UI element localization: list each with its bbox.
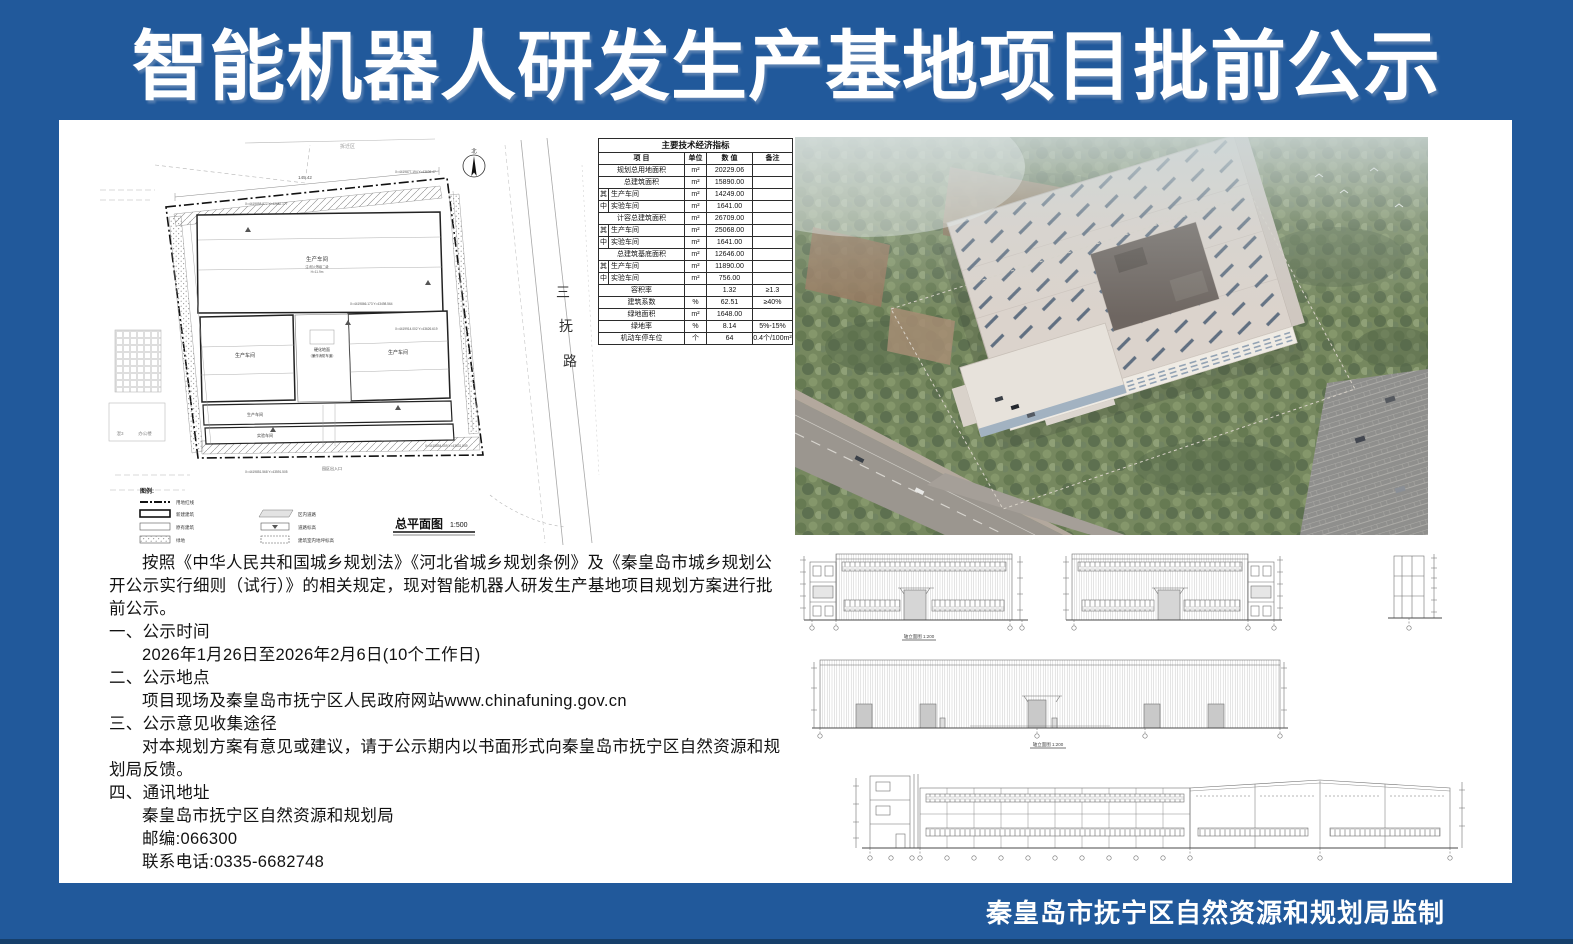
svg-text:道路标高: 道路标高 (298, 524, 316, 531)
notice-line: 秦皇岛市抚宁区自然资源和规划局 (109, 805, 799, 828)
plan-legend: 图例: 用地红线 新建建筑 原有建筑 绿地 区内道路 道路标高 建筑室内地坪标高 (140, 487, 334, 544)
indicator-note (753, 273, 793, 285)
bottom-edge (0, 939, 1573, 944)
svg-text:X=4419877.194 Y=43636.47: X=4419877.194 Y=43636.47 (395, 170, 436, 174)
indicator-unit: m² (685, 201, 707, 213)
road-name-char-3: 路 (563, 353, 577, 369)
indicator-row: 其生产车间m²14249.00 (599, 189, 793, 201)
indicator-label: 建筑系数 (599, 297, 684, 308)
indicator-row: 中实验车间m²1641.00 (599, 201, 793, 213)
indicator-unit: m² (685, 189, 707, 201)
indicator-note: ≥1.3 (753, 285, 793, 297)
notice-line: 三、公示意见收集途径 (109, 713, 799, 736)
indicator-note: 5%-15% (753, 321, 793, 333)
indicator-row: 计容总建筑面积m²26709.00 (599, 213, 793, 225)
section-axis-bubbles (868, 856, 1452, 860)
indicator-unit: m² (685, 273, 707, 285)
svg-text:X=4419914.002 Y=43626.619: X=4419914.002 Y=43626.619 (395, 327, 438, 331)
indicator-label: 实验车间 (609, 201, 684, 212)
elevation-long-caption: 轴立面图 1:200 (1033, 741, 1064, 748)
svg-text:生产车间: 生产车间 (306, 255, 328, 263)
elevation-drawings: 轴立面图 1:200 (790, 538, 1470, 883)
indicator-note: ≥40% (753, 297, 793, 309)
svg-text:1:500: 1:500 (450, 522, 468, 529)
indicator-note (753, 201, 793, 213)
bottom-bar: 秦皇岛市抚宁区自然资源和规划局监制 (0, 883, 1573, 939)
svg-text:新建建筑: 新建建筑 (176, 511, 194, 518)
svg-text:混3: 混3 (116, 430, 123, 437)
north-arrow-icon: 北 (463, 147, 485, 177)
indicator-unit: 个 (685, 333, 707, 345)
svg-text:园区出入口: 园区出入口 (322, 465, 342, 471)
indicator-value: 25068.00 (707, 225, 753, 237)
elevation-b (1063, 554, 1283, 630)
col-header-value: 数 值 (707, 153, 753, 165)
indicator-label: 计容总建筑面积 (599, 213, 684, 224)
notice-line: 开公示实行细则（试行）》的相关规定，现对智能机器人研发生产基地项目规划方案进行批 (109, 575, 799, 598)
road-sanfu: 三 抚 路 (505, 138, 599, 545)
indicators-table: 主要技术经济指标 项 目 单位 数 值 备注 规划总用地面积m²20229.06… (598, 138, 793, 345)
public-notice-poster: 智能机器人研发生产基地项目批前公示 (0, 0, 1573, 944)
page-title: 智能机器人研发生产基地项目批前公示 (132, 5, 1441, 115)
svg-text:用地红线: 用地红线 (176, 499, 194, 506)
indicator-note (753, 237, 793, 249)
indicator-value: 62.51 (707, 297, 753, 309)
indicator-row: 总建筑基底面积m²12646.00 (599, 249, 793, 261)
indicator-row: 绿地率%8.145%-15% (599, 321, 793, 333)
svg-text:总平面图: 总平面图 (395, 516, 443, 531)
indicator-note (753, 309, 793, 321)
elevation-side-fragment (1388, 554, 1442, 630)
indicator-label: 机动车停车位 (599, 333, 684, 344)
indicator-prefix: 其 (599, 261, 609, 272)
indicator-row: 机动车停车位个640.4个/100m² (599, 333, 793, 345)
svg-text:生产车间: 生产车间 (247, 411, 263, 417)
indicator-note (753, 213, 793, 225)
indicator-prefix: 中 (599, 201, 609, 212)
notice-line: 按照《中华人民共和国城乡规划法》《河北省城乡规划条例》及《秦皇岛市城乡规划公 (109, 552, 799, 575)
svg-text:（兼作消防车道）: （兼作消防车道） (308, 353, 335, 358)
indicator-value: 64 (707, 333, 753, 345)
svg-text:X=4419851.568 Y=43591.505: X=4419851.568 Y=43591.505 (245, 470, 288, 474)
col-header-note: 备注 (753, 153, 793, 165)
indicator-unit: % (685, 297, 707, 309)
indicator-prefix: 中 (599, 237, 609, 248)
indicator-label: 规划总用地面积 (599, 165, 684, 176)
indicator-row: 总建筑面积m²15890.00 (599, 177, 793, 189)
plan-caption: 总平面图 1:500 (393, 516, 475, 535)
indicator-value: 12646.00 (707, 249, 753, 261)
indicator-label: 实验车间 (609, 237, 684, 248)
notice-line: 一、公示时间 (109, 621, 799, 644)
indicator-unit: m² (685, 309, 707, 321)
col-header-item: 项 目 (599, 153, 685, 165)
svg-text:生产车间: 生产车间 (235, 352, 255, 359)
svg-text:145.42: 145.42 (298, 175, 312, 180)
indicator-row: 中实验车间m²756.00 (599, 273, 793, 285)
indicator-note (753, 177, 793, 189)
indicator-value: 8.14 (707, 321, 753, 333)
indicator-label: 实验车间 (609, 273, 684, 284)
road-name-char-1: 三 (556, 284, 570, 300)
site-plan-drawing: 拆迁区 三 抚 路 北 145.42 (95, 135, 600, 550)
road-name-char-2: 抚 (559, 318, 573, 334)
indicator-unit: % (685, 321, 707, 333)
col-header-unit: 单位 (685, 153, 707, 165)
svg-text:原有建筑: 原有建筑 (176, 524, 194, 531)
indicator-label: 生产车间 (609, 189, 684, 200)
notice-line: 2026年1月26日至2026年2月6日(10个工作日) (109, 644, 799, 667)
indicator-row: 其生产车间m²25068.00 (599, 225, 793, 237)
svg-text:X=4419858.877 Y=42682.177: X=4419858.877 Y=42682.177 (245, 202, 288, 206)
indicators-title: 主要技术经济指标 (599, 139, 793, 153)
notice-line: 四、通讯地址 (109, 782, 799, 805)
notice-line: 项目现场及秦皇岛市抚宁区人民政府网站www.chinafuning.gov.cn (109, 690, 799, 713)
elevation-long: 轴立面图 1:200 (811, 660, 1288, 748)
indicator-value: 1.32 (707, 285, 753, 297)
indicator-label: 容积率 (599, 285, 684, 296)
indicator-value: 26709.00 (707, 213, 753, 225)
indicator-row: 规划总用地面积m²20229.06 (599, 165, 793, 177)
indicator-value: 1641.00 (707, 237, 753, 249)
notice-line: 邮编:066300 (109, 828, 799, 851)
notice-line: 二、公示地点 (109, 667, 799, 690)
indicator-unit: m² (685, 249, 707, 261)
svg-text:北: 北 (471, 147, 477, 155)
indicator-value: 20229.06 (707, 165, 753, 177)
indicator-label: 绿地面积 (599, 309, 684, 320)
indicator-prefix: 其 (599, 225, 609, 236)
indicator-label: 生产车间 (609, 261, 684, 272)
content-sheet: 拆迁区 三 抚 路 北 145.42 (59, 120, 1512, 883)
svg-text:X=4419866.173 Y=43498.564: X=4419866.173 Y=43498.564 (350, 302, 393, 306)
indicator-row: 中实验车间m²1641.00 (599, 237, 793, 249)
svg-text:硬化地面: 硬化地面 (314, 346, 330, 352)
indicator-note (753, 165, 793, 177)
section-drawing (853, 774, 1465, 860)
indicator-prefix: 中 (599, 273, 609, 284)
notice-line: 对本规划方案有意见或建议，请于公示期内以书面形式向秦皇岛市抚宁区自然资源和规 (109, 736, 799, 759)
indicator-unit: m² (685, 177, 707, 189)
indicator-value: 1641.00 (707, 201, 753, 213)
indicator-row: 绿地面积m²1648.00 (599, 309, 793, 321)
indicator-label: 总建筑基底面积 (599, 249, 684, 260)
indicator-unit (685, 285, 707, 297)
svg-text:注:耐火等级二级: 注:耐火等级二级 (305, 264, 329, 269)
elevation-a-caption: 轴立面图 1:200 (904, 633, 935, 640)
notice-line: 前公示。 (109, 598, 799, 621)
notice-text: 按照《中华人民共和国城乡规划法》《河北省城乡规划条例》及《秦皇岛市城乡规划公开公… (109, 552, 799, 874)
indicator-note (753, 261, 793, 273)
credit-line: 秦皇岛市抚宁区自然资源和规划局监制 (986, 893, 1445, 930)
indicator-value: 15890.00 (707, 177, 753, 189)
indicator-row: 建筑系数%62.51≥40% (599, 297, 793, 309)
svg-text:区内道路: 区内道路 (298, 511, 316, 518)
indicator-unit: m² (685, 225, 707, 237)
indicator-unit: m² (685, 237, 707, 249)
svg-text:H=11.9m: H=11.9m (311, 270, 324, 274)
indicator-value: 11890.00 (707, 261, 753, 273)
title-bar: 智能机器人研发生产基地项目批前公示 (0, 0, 1573, 120)
area-label: 拆迁区 (340, 143, 355, 150)
neighbor-buildings: 办公楼 混3 (109, 330, 165, 441)
indicator-note (753, 249, 793, 261)
indicator-unit: m² (685, 261, 707, 273)
svg-text:图例:: 图例: (140, 487, 154, 495)
svg-text:绿地: 绿地 (176, 537, 185, 543)
svg-text:建筑室内地坪标高: 建筑室内地坪标高 (298, 537, 334, 544)
elevation-a: 轴立面图 1:200 (800, 554, 1028, 640)
indicator-row: 容积率1.32≥1.3 (599, 285, 793, 297)
indicator-note (753, 189, 793, 201)
indicator-value: 756.00 (707, 273, 753, 285)
aerial-rendering (795, 137, 1428, 535)
indicator-row: 其生产车间m²11890.00 (599, 261, 793, 273)
indicator-prefix: 其 (599, 189, 609, 200)
svg-text:办公楼: 办公楼 (138, 430, 152, 437)
indicators-body: 规划总用地面积m²20229.06总建筑面积m²15890.00其生产车间m²1… (599, 165, 793, 345)
indicator-unit: m² (685, 213, 707, 225)
indicator-note: 0.4个/100m² (753, 333, 793, 345)
indicator-note (753, 225, 793, 237)
notice-line: 划局反馈。 (109, 759, 799, 782)
svg-text:X=4419854.059 Y=43631.049: X=4419854.059 Y=43631.049 (425, 444, 468, 448)
indicator-value: 14249.00 (707, 189, 753, 201)
svg-text:生产车间: 生产车间 (388, 349, 408, 356)
svg-text:实验车间: 实验车间 (257, 432, 273, 438)
indicator-label: 总建筑面积 (599, 177, 684, 188)
indicator-unit: m² (685, 165, 707, 177)
indicator-label: 生产车间 (609, 225, 684, 236)
notice-line: 联系电话:0335-6682748 (109, 851, 799, 874)
indicator-label: 绿地率 (599, 321, 684, 332)
indicator-value: 1648.00 (707, 309, 753, 321)
